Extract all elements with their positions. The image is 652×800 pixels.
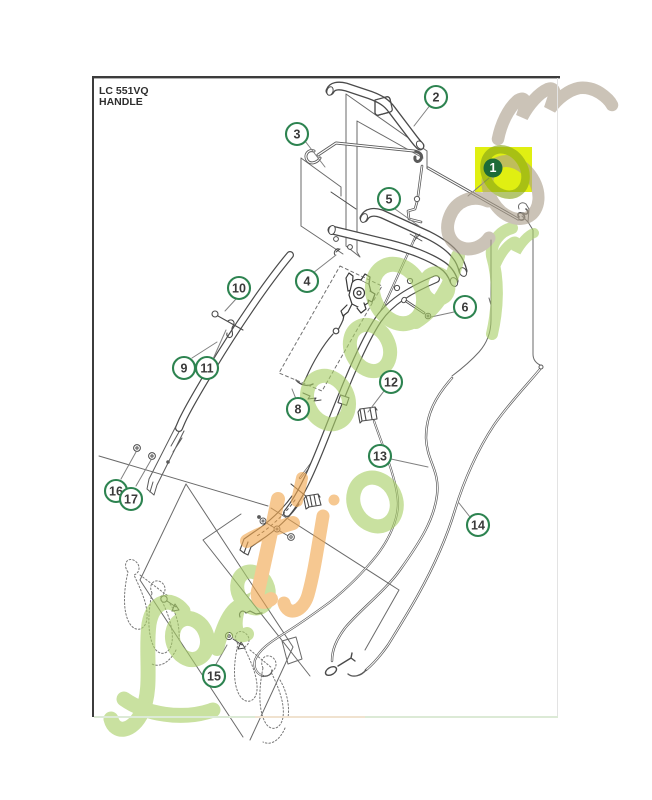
- svg-text:HANDLE: HANDLE: [99, 96, 143, 108]
- svg-text:17: 17: [124, 493, 138, 507]
- svg-text:10: 10: [232, 282, 246, 296]
- svg-text:8: 8: [295, 403, 302, 417]
- svg-text:6: 6: [462, 301, 469, 315]
- svg-text:15: 15: [207, 670, 221, 684]
- svg-text:1: 1: [490, 161, 497, 175]
- svg-text:5: 5: [386, 193, 393, 207]
- svg-text:13: 13: [373, 450, 387, 464]
- svg-text:2: 2: [433, 91, 440, 105]
- svg-text:4: 4: [304, 275, 311, 289]
- svg-text:14: 14: [471, 519, 485, 533]
- svg-text:9: 9: [181, 362, 188, 376]
- svg-text:11: 11: [200, 362, 213, 376]
- svg-text:12: 12: [384, 376, 398, 390]
- svg-text:3: 3: [294, 128, 301, 142]
